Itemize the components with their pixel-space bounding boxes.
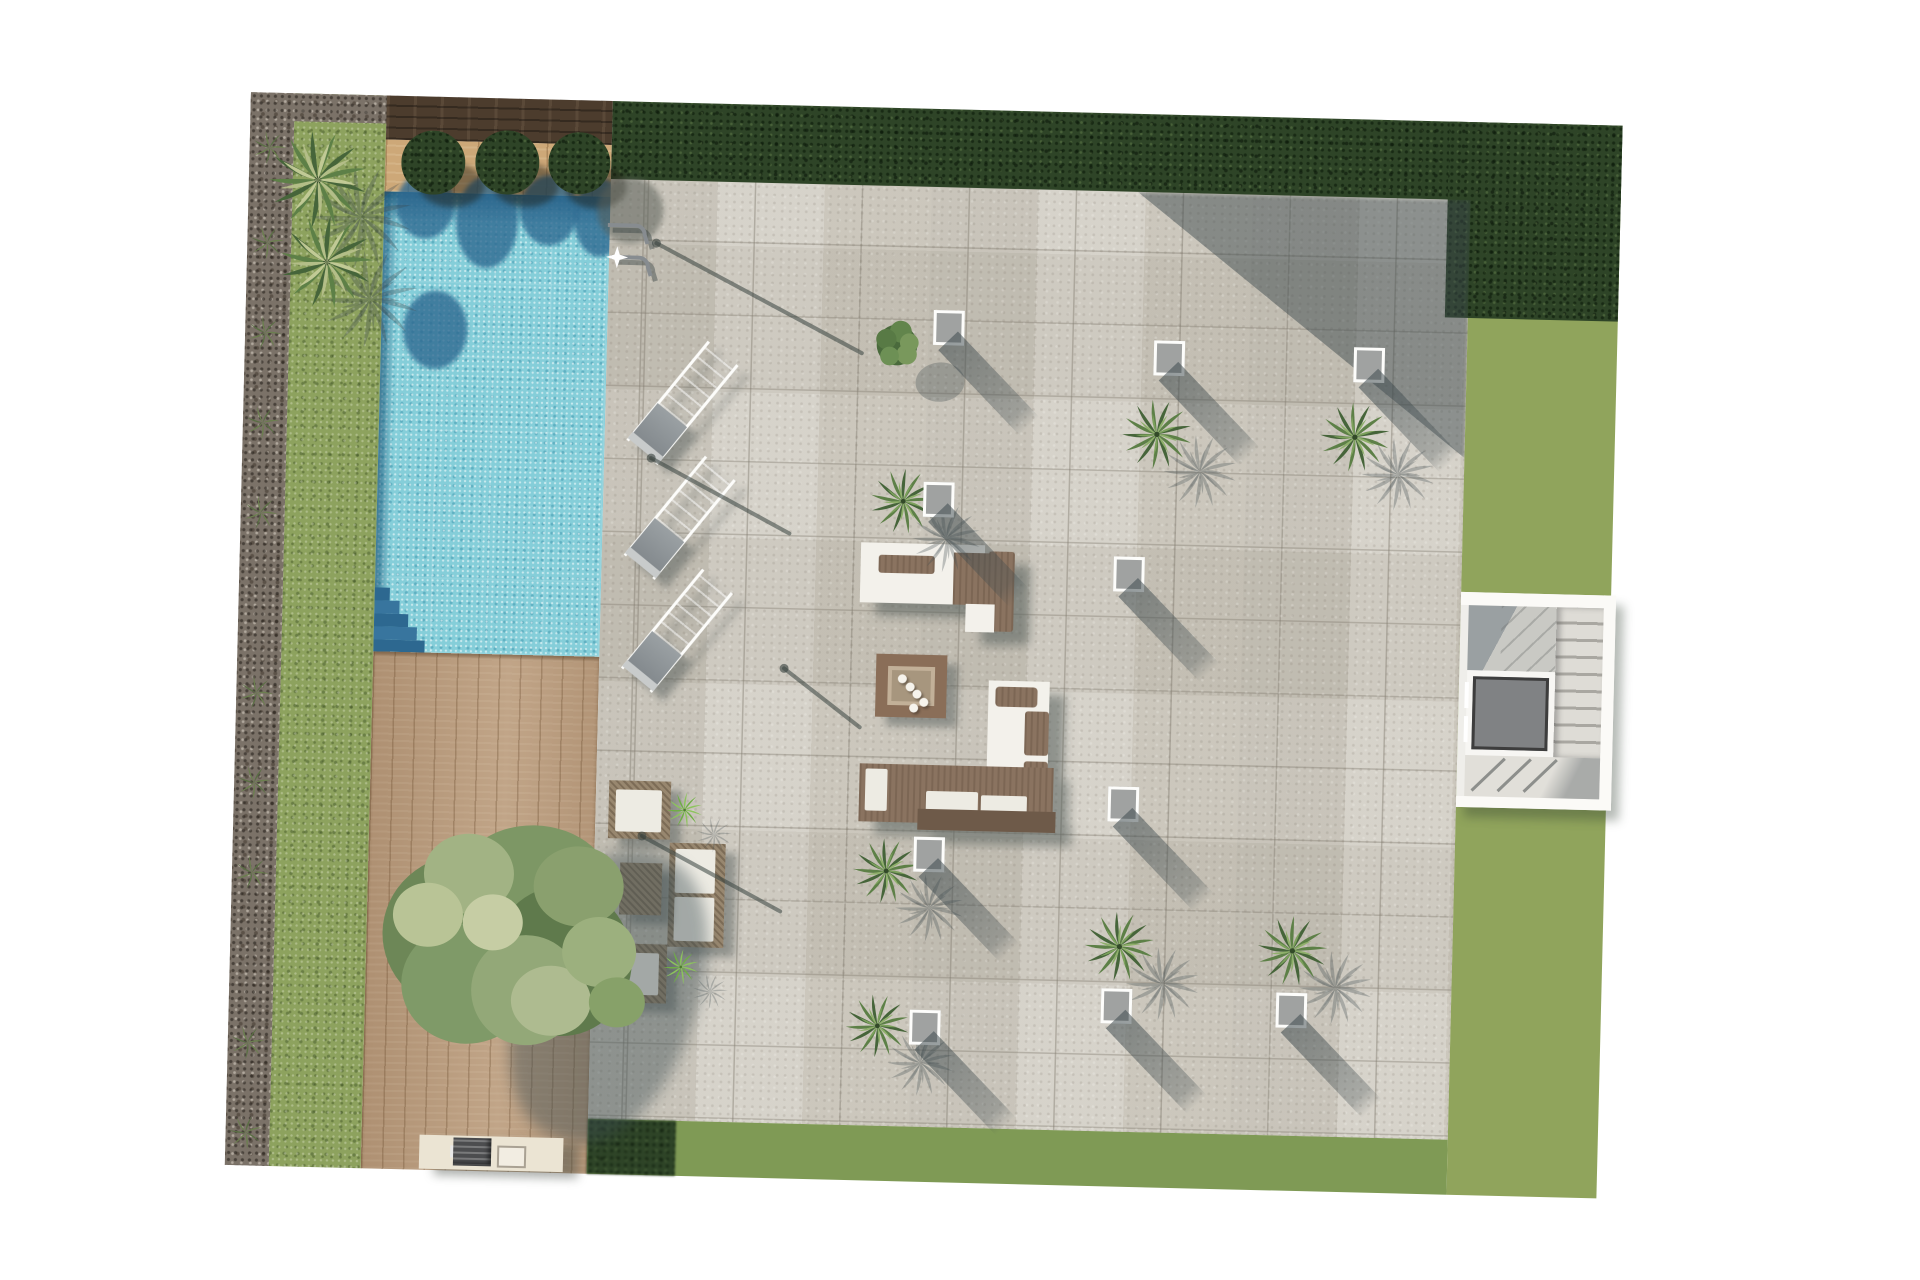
pool-steps: [374, 613, 408, 627]
gravel-top: [250, 92, 391, 123]
sofa-base: [917, 809, 1055, 833]
hedge-right: [1445, 121, 1623, 321]
pillow: [865, 768, 888, 811]
ground-light: [1353, 347, 1385, 383]
ground-light: [923, 482, 955, 518]
large-tree: [360, 821, 638, 1062]
stair-treads: [1553, 607, 1604, 758]
l-sofa-group: [858, 677, 1062, 834]
pool-steps: [375, 587, 390, 600]
ground-light: [1275, 993, 1307, 1029]
ground-light: [913, 837, 945, 873]
ground-light: [933, 310, 965, 346]
palm-reflection: [402, 290, 468, 370]
swimming-pool: [373, 191, 610, 656]
side-table: [965, 604, 995, 633]
site-plan: [217, 92, 1623, 1198]
stair-landing: [1467, 605, 1557, 672]
pool-steps: [374, 600, 399, 614]
elevator-frame: [1465, 670, 1555, 757]
pool-steps: [374, 626, 417, 640]
ground-light: [1101, 988, 1133, 1024]
grill: [453, 1137, 492, 1166]
ground-light: [1113, 556, 1145, 592]
bbq-counter: [419, 1135, 564, 1173]
ground-light: [1107, 786, 1139, 822]
ground-light: [1153, 340, 1185, 376]
stair-lower: [1464, 755, 1600, 799]
elevator: [1471, 676, 1549, 751]
daybed-pillow: [878, 555, 934, 574]
ground-light: [909, 1010, 941, 1046]
back-cushion: [1024, 711, 1049, 756]
stair-block: [1456, 592, 1616, 811]
sink: [497, 1146, 527, 1169]
headrest: [995, 687, 1037, 708]
page: [0, 0, 1920, 1280]
